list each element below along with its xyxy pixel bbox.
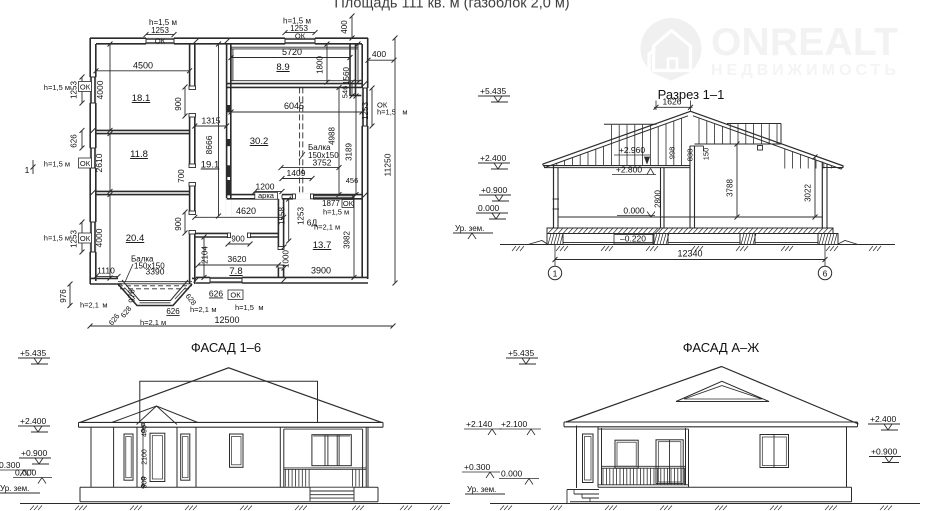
svg-text:1000: 1000 bbox=[282, 250, 291, 268]
svg-text:4620: 4620 bbox=[236, 206, 256, 216]
svg-text:6: 6 bbox=[823, 269, 828, 279]
svg-text:м: м bbox=[402, 108, 407, 117]
svg-text:Ур. зем.: Ур. зем. bbox=[467, 485, 496, 494]
svg-text:h=1,5: h=1,5 bbox=[235, 303, 254, 312]
svg-text:1626: 1626 bbox=[663, 97, 682, 107]
svg-text:1409: 1409 bbox=[287, 168, 306, 178]
svg-text:+2.400: +2.400 bbox=[870, 414, 897, 424]
svg-text:3620: 3620 bbox=[228, 254, 247, 264]
svg-text:ОК: ОК bbox=[155, 36, 166, 45]
svg-text:Площадь 111 кв. м (газоблок 2,: Площадь 111 кв. м (газоблок 2,0 м) bbox=[334, 0, 569, 12]
svg-text:626: 626 bbox=[209, 289, 223, 299]
svg-text:0.000: 0.000 bbox=[623, 206, 645, 216]
svg-text:900: 900 bbox=[231, 235, 245, 244]
svg-text:h=1,5 м: h=1,5 м bbox=[149, 18, 177, 27]
svg-text:2800: 2800 bbox=[654, 190, 663, 208]
svg-text:м: м bbox=[211, 305, 216, 314]
svg-text:h=2,1: h=2,1 bbox=[80, 301, 99, 310]
svg-text:h=1,5 м: h=1,5 м bbox=[283, 17, 311, 26]
svg-text:1800: 1800 bbox=[316, 56, 325, 74]
svg-text:1200: 1200 bbox=[256, 181, 275, 191]
svg-text:1253: 1253 bbox=[70, 81, 79, 99]
svg-text:3900: 3900 bbox=[311, 266, 331, 276]
svg-text:h=1,5 м: h=1,5 м bbox=[323, 208, 349, 217]
svg-text:Ур. зем.: Ур. зем. bbox=[0, 484, 29, 493]
svg-text:+0.300: +0.300 bbox=[464, 462, 491, 472]
svg-text:+2.960: +2.960 bbox=[619, 145, 646, 155]
svg-text:ОК: ОК bbox=[80, 83, 91, 92]
svg-text:11.8: 11.8 bbox=[130, 149, 148, 160]
svg-text:+0.900: +0.900 bbox=[871, 447, 898, 457]
svg-text:Ур. зем.: Ур. зем. bbox=[455, 224, 484, 233]
svg-text:7.8: 7.8 bbox=[229, 266, 242, 277]
svg-text:456: 456 bbox=[346, 176, 359, 185]
svg-text:h=1,5 м: h=1,5 м bbox=[44, 234, 70, 243]
svg-text:арка: арка bbox=[258, 191, 275, 200]
svg-text:400: 400 bbox=[340, 20, 349, 34]
svg-text:+0.900: +0.900 bbox=[481, 185, 508, 195]
svg-text:18.1: 18.1 bbox=[132, 93, 151, 104]
svg-text:1253: 1253 bbox=[70, 230, 79, 248]
svg-text:ОК: ОК bbox=[295, 32, 306, 41]
svg-text:h=2,1: h=2,1 bbox=[190, 305, 209, 314]
svg-text:8.9: 8.9 bbox=[276, 62, 289, 73]
svg-text:626: 626 bbox=[70, 134, 79, 148]
svg-text:0.000: 0.000 bbox=[478, 203, 500, 213]
svg-text:+2.400: +2.400 bbox=[20, 416, 47, 426]
svg-text:+2.800: +2.800 bbox=[616, 165, 643, 175]
svg-text:h=1,5: h=1,5 bbox=[377, 108, 396, 117]
svg-text:12340: 12340 bbox=[677, 249, 702, 259]
svg-text:838: 838 bbox=[686, 149, 695, 162]
svg-text:150: 150 bbox=[702, 148, 711, 161]
svg-text:11250: 11250 bbox=[383, 153, 393, 176]
svg-text:300: 300 bbox=[142, 477, 149, 489]
svg-text:3189: 3189 bbox=[345, 143, 354, 161]
svg-text:1315: 1315 bbox=[202, 116, 221, 126]
svg-text:8666: 8666 bbox=[204, 135, 214, 154]
svg-text:900: 900 bbox=[174, 217, 183, 231]
svg-text:3752: 3752 bbox=[313, 157, 332, 167]
svg-text:ФАСАД А–Ж: ФАСАД А–Ж bbox=[683, 340, 760, 355]
svg-text:400: 400 bbox=[142, 425, 149, 437]
svg-text:4988: 4988 bbox=[328, 127, 337, 145]
svg-text:19.1: 19.1 bbox=[201, 160, 220, 171]
svg-text:3022: 3022 bbox=[804, 184, 813, 202]
svg-text:976: 976 bbox=[59, 289, 68, 303]
svg-text:2104: 2104 bbox=[201, 246, 210, 264]
svg-text:30.2: 30.2 bbox=[250, 136, 269, 147]
svg-text:546: 546 bbox=[341, 86, 350, 99]
svg-text:+2.100: +2.100 bbox=[501, 419, 528, 429]
svg-text:1253: 1253 bbox=[151, 26, 169, 35]
svg-text:900: 900 bbox=[174, 97, 183, 111]
svg-text:1560: 1560 bbox=[342, 67, 351, 85]
svg-text:ОК: ОК bbox=[80, 234, 91, 243]
svg-text:1: 1 bbox=[553, 269, 558, 279]
svg-text:1253: 1253 bbox=[361, 102, 370, 120]
svg-text:2610: 2610 bbox=[94, 153, 104, 172]
svg-text:626: 626 bbox=[166, 307, 180, 316]
svg-text:13.7: 13.7 bbox=[313, 240, 332, 251]
svg-text:4000: 4000 bbox=[95, 80, 105, 99]
svg-text:ONREALT: ONREALT bbox=[711, 21, 898, 64]
svg-text:м: м bbox=[102, 301, 107, 310]
svg-text:ОК: ОК bbox=[230, 291, 241, 300]
svg-text:2100: 2100 bbox=[142, 449, 149, 465]
svg-text:12500: 12500 bbox=[214, 315, 239, 325]
svg-text:+2.400: +2.400 bbox=[480, 153, 507, 163]
svg-text:400: 400 bbox=[372, 49, 386, 59]
svg-text:3982: 3982 bbox=[343, 231, 352, 249]
svg-text:5720: 5720 bbox=[282, 47, 302, 57]
svg-text:4000: 4000 bbox=[94, 228, 104, 247]
svg-text:+2.140: +2.140 bbox=[466, 419, 493, 429]
svg-text:h=2,1 м: h=2,1 м bbox=[314, 223, 340, 232]
svg-text:3390: 3390 bbox=[146, 267, 165, 277]
svg-text:1: 1 bbox=[25, 165, 30, 175]
svg-text:–0.220: –0.220 bbox=[620, 234, 646, 244]
svg-text:+0.900: +0.900 bbox=[21, 448, 48, 458]
svg-text:НЕДВИЖИМОСТЬ: НЕДВИЖИМОСТЬ bbox=[711, 62, 900, 79]
svg-text:0.000: 0.000 bbox=[501, 469, 523, 479]
svg-text:1110: 1110 bbox=[97, 266, 115, 276]
svg-text:976: 976 bbox=[128, 289, 137, 303]
svg-text:+5.435: +5.435 bbox=[508, 348, 535, 358]
svg-text:ОК: ОК bbox=[80, 159, 91, 168]
svg-text:4500: 4500 bbox=[133, 60, 153, 70]
svg-text:h=1,5 м: h=1,5 м bbox=[44, 83, 70, 92]
svg-text:6045: 6045 bbox=[284, 101, 304, 111]
svg-text:0.000: 0.000 bbox=[15, 468, 37, 478]
svg-text:+5.435: +5.435 bbox=[480, 86, 507, 96]
svg-text:ФАСАД 1–6: ФАСАД 1–6 bbox=[191, 340, 261, 355]
svg-text:h=1,5 м: h=1,5 м bbox=[44, 160, 70, 169]
svg-text:+5.435: +5.435 bbox=[20, 348, 47, 358]
svg-text:20.4: 20.4 bbox=[126, 233, 145, 244]
svg-text:1253: 1253 bbox=[297, 207, 306, 225]
svg-text:700: 700 bbox=[177, 169, 186, 183]
svg-text:м: м bbox=[258, 303, 263, 312]
svg-text:3788: 3788 bbox=[726, 179, 735, 197]
svg-text:998: 998 bbox=[668, 147, 677, 160]
